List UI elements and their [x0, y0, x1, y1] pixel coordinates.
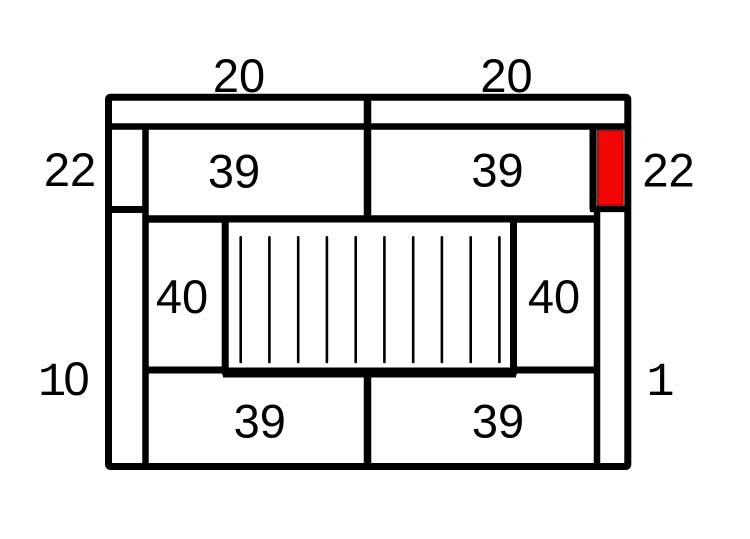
- svg-text:0: 0: [64, 352, 90, 405]
- svg-text:20: 20: [480, 49, 532, 102]
- svg-text:39: 39: [472, 395, 524, 448]
- svg-text:1: 1: [646, 357, 674, 410]
- svg-text:39: 39: [234, 395, 286, 448]
- svg-text:39: 39: [208, 145, 260, 198]
- svg-text:39: 39: [471, 144, 523, 197]
- svg-text:22: 22: [642, 144, 694, 197]
- svg-text:20: 20: [213, 49, 265, 102]
- svg-text:40: 40: [156, 270, 208, 323]
- svg-text:1: 1: [38, 357, 66, 410]
- svg-text:40: 40: [528, 270, 580, 323]
- svg-text:22: 22: [44, 143, 96, 196]
